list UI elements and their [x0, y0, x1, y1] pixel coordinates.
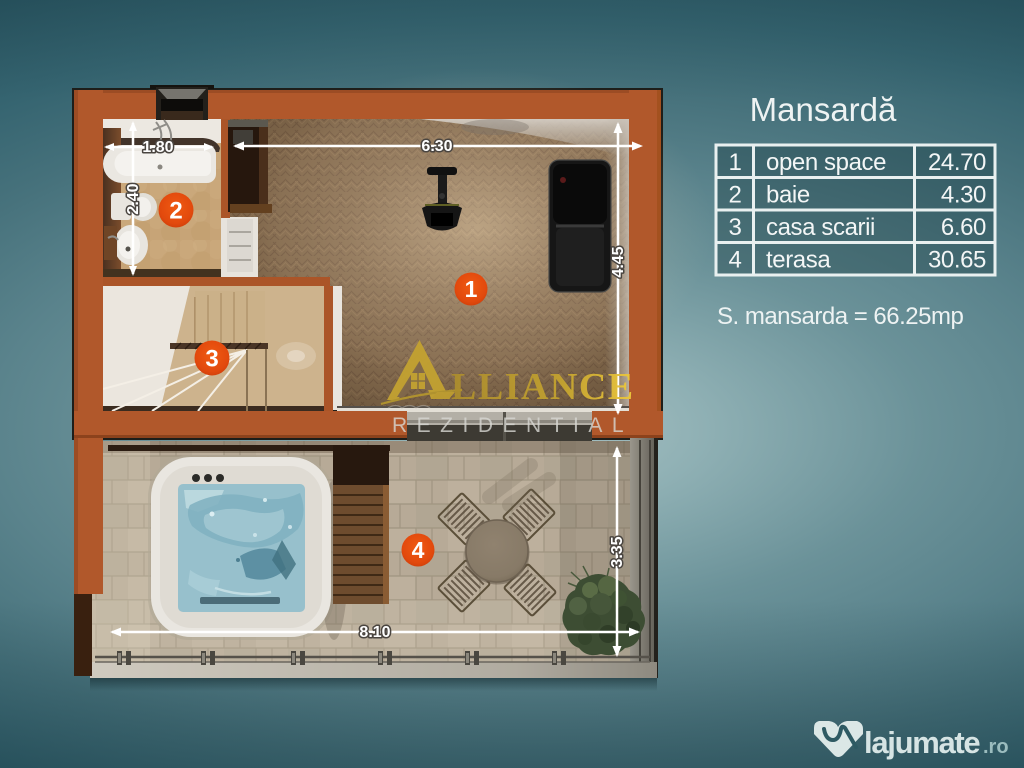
svg-text:S. mansarda = 66.25mp: S. mansarda = 66.25mp: [717, 303, 963, 330]
svg-text:3: 3: [205, 346, 218, 373]
svg-text:lajumate: lajumate: [864, 725, 980, 760]
svg-text:2: 2: [729, 182, 742, 209]
svg-text:30.65: 30.65: [928, 247, 986, 274]
svg-text:4.30: 4.30: [941, 182, 986, 209]
svg-text:casa scarii: casa scarii: [766, 214, 875, 241]
svg-text:8.10: 8.10: [359, 624, 390, 641]
svg-text:2: 2: [169, 198, 182, 225]
svg-text:REZIDENTIAL: REZIDENTIAL: [392, 414, 633, 437]
svg-text:3: 3: [729, 214, 742, 241]
svg-text:LLIANCE: LLIANCE: [451, 366, 635, 408]
svg-text:1.80: 1.80: [142, 139, 173, 156]
svg-text:baie: baie: [766, 182, 810, 209]
svg-text:1: 1: [465, 276, 478, 302]
svg-text:3.35: 3.35: [609, 536, 626, 567]
svg-text:Mansardă: Mansardă: [750, 91, 897, 128]
svg-text:open space: open space: [766, 149, 886, 176]
svg-text:24.70: 24.70: [928, 149, 986, 176]
svg-text:terasa: terasa: [766, 247, 831, 274]
svg-text:2.40: 2.40: [125, 183, 142, 214]
svg-text:4.45: 4.45: [610, 246, 627, 277]
svg-text:4: 4: [412, 537, 425, 563]
svg-text:.ro: .ro: [983, 736, 1009, 758]
svg-text:6.30: 6.30: [421, 138, 452, 155]
svg-text:4: 4: [729, 247, 742, 274]
svg-text:1: 1: [729, 149, 742, 176]
svg-text:6.60: 6.60: [941, 214, 986, 241]
